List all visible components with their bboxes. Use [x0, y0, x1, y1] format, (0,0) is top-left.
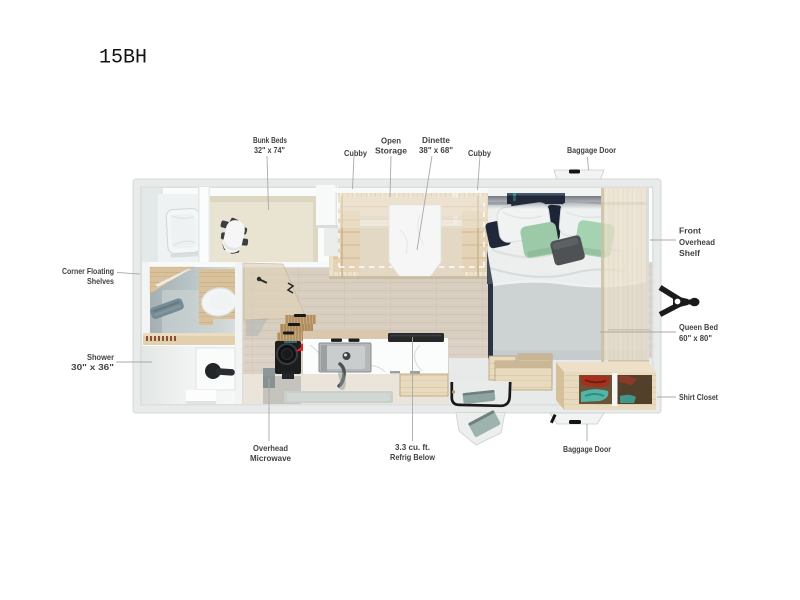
- svg-text:60" x 80": 60" x 80": [679, 333, 712, 343]
- svg-text:Shelf: Shelf: [679, 248, 700, 258]
- svg-text:Shower: Shower: [87, 352, 115, 362]
- svg-text:Baggage Door: Baggage Door: [567, 145, 617, 155]
- svg-text:38" x 68": 38" x 68": [419, 145, 453, 155]
- svg-text:Shirt Closet: Shirt Closet: [679, 392, 718, 402]
- svg-text:Overhead: Overhead: [679, 237, 715, 247]
- svg-text:Refrig Below: Refrig Below: [390, 452, 435, 462]
- svg-text:Queen Bed: Queen Bed: [679, 322, 718, 332]
- svg-text:Bunk Beds: Bunk Beds: [253, 135, 287, 145]
- svg-text:32" x 74": 32" x 74": [254, 145, 285, 155]
- svg-text:Corner Floating: Corner Floating: [62, 266, 114, 276]
- svg-text:Baggage Door: Baggage Door: [563, 444, 612, 454]
- svg-text:Overhead: Overhead: [253, 443, 288, 453]
- svg-text:Cubby: Cubby: [468, 148, 491, 158]
- svg-text:30" x 36": 30" x 36": [71, 362, 114, 372]
- svg-text:Shelves: Shelves: [87, 276, 114, 286]
- svg-text:Storage: Storage: [375, 146, 407, 156]
- svg-text:Open: Open: [381, 136, 401, 146]
- svg-text:Cubby: Cubby: [344, 148, 367, 158]
- svg-text:Microwave: Microwave: [250, 453, 291, 463]
- svg-text:Front: Front: [679, 226, 701, 236]
- svg-text:15BH: 15BH: [99, 47, 147, 70]
- svg-text:Dinette: Dinette: [422, 135, 450, 145]
- svg-text:3.3 cu. ft.: 3.3 cu. ft.: [395, 442, 430, 452]
